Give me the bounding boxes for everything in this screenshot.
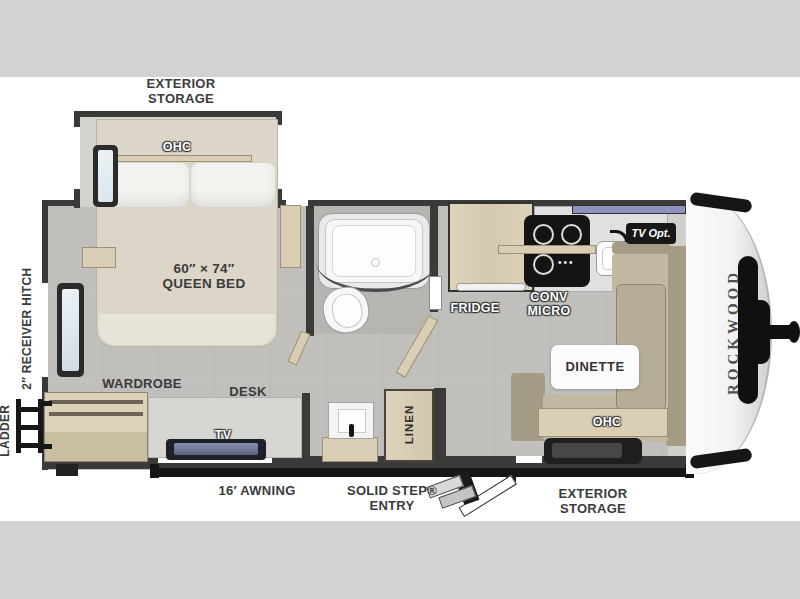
- shower-door-arc: [316, 232, 436, 292]
- label-ladder: LADDER: [0, 399, 13, 463]
- bedside-dresser: [82, 247, 116, 268]
- wardrobe-slat: [49, 400, 143, 404]
- pillow-right: [190, 162, 276, 208]
- vanity-sink: [328, 402, 374, 439]
- label-queen-bed: 60″ × 74″ QUEEN BED: [134, 261, 274, 291]
- rear-window: [57, 283, 84, 377]
- bathroom-left-wall: [306, 206, 314, 336]
- burner: [533, 224, 554, 245]
- wardrobe-front: [45, 432, 147, 461]
- ladder-hook: [43, 401, 52, 406]
- stabilizer-jack: [56, 464, 78, 476]
- rear-window-slot: [42, 283, 48, 377]
- label-fridge: FRIDGE: [440, 301, 510, 315]
- label-conv-micro: CONV MICRO: [518, 290, 580, 318]
- label-bedroom-ohc: OHC: [147, 140, 207, 154]
- label-line: STORAGE: [106, 92, 256, 107]
- bedside-cabinet: [280, 205, 301, 268]
- rockwood-wordmark: ROCKWOOD: [725, 257, 741, 407]
- vanity-cabinet: [322, 437, 378, 462]
- tv-opt-badge: TV Opt.: [626, 223, 676, 244]
- storage-hatch: [544, 438, 642, 464]
- label-line: ENTRY: [337, 499, 447, 514]
- label-line: 60″ × 74″: [134, 261, 274, 276]
- storage-hatch-inner: [552, 443, 622, 458]
- bed-foot-sheet: [99, 314, 275, 345]
- counter-extension: [498, 245, 596, 254]
- toilet-lid: [329, 291, 365, 330]
- label-line: EXTERIOR: [106, 77, 256, 92]
- slideout-window: [93, 145, 118, 207]
- wardrobe-chest: [44, 392, 148, 462]
- label-dinette-ohc: OHC: [577, 415, 637, 429]
- dinette-badge: DINETTE: [551, 345, 639, 389]
- label-tv: TV: [200, 428, 246, 442]
- tv-unit: [166, 439, 266, 460]
- vanity-faucet-icon: [349, 424, 354, 437]
- awning-endcap-left: [150, 464, 159, 478]
- label-exterior-storage-bottom: EXTERIOR STORAGE: [538, 487, 648, 516]
- label-receiver-hitch: 2″ RECEIVER HITCH: [21, 244, 34, 414]
- label-solid-step-entry: SOLID STEP® ENTRY: [337, 484, 447, 513]
- propane-cover: [748, 300, 770, 364]
- burner: [561, 224, 582, 245]
- top-gray-band: [0, 0, 800, 77]
- label-line: QUEEN BED: [134, 276, 274, 291]
- slideout-top-wall: [74, 111, 282, 117]
- entry-divider-wall: [434, 388, 446, 458]
- bottom-gray-band: [0, 521, 800, 599]
- label-exterior-storage-top: EXTERIOR STORAGE: [106, 77, 256, 106]
- label-awning: 16′ AWNING: [197, 484, 317, 499]
- burner-knobs-icon: •••: [558, 257, 575, 268]
- tv-screen: [174, 443, 258, 455]
- front-window-strip: [572, 205, 686, 214]
- ladder-rung: [16, 425, 43, 430]
- label-line: EXTERIOR: [538, 487, 648, 502]
- burner: [533, 254, 554, 275]
- label-desk: DESK: [222, 385, 274, 400]
- label-line: SOLID STEP®: [337, 484, 447, 499]
- floorplan: •••: [0, 0, 800, 599]
- label-linen: LINEN: [403, 394, 416, 454]
- ladder-hook: [43, 444, 52, 449]
- slideout-window-left-slot: [74, 127, 80, 189]
- ladder-rung: [16, 443, 43, 448]
- label-line: MICRO: [518, 304, 580, 318]
- slideout-window-glass: [98, 150, 113, 202]
- wardrobe-slat: [49, 412, 143, 416]
- rear-window-glass: [62, 289, 79, 371]
- hitch-coupler: [788, 321, 800, 343]
- bottom-window-slot-2: [516, 456, 542, 463]
- fridge-handle: [456, 283, 526, 291]
- desk-divider-wall: [302, 393, 310, 458]
- awning-bar: [152, 468, 694, 477]
- ohc-shelf: [102, 155, 252, 162]
- label-wardrobe: WARDROBE: [96, 377, 188, 392]
- label-line: STORAGE: [538, 502, 648, 517]
- label-line: CONV: [518, 290, 580, 304]
